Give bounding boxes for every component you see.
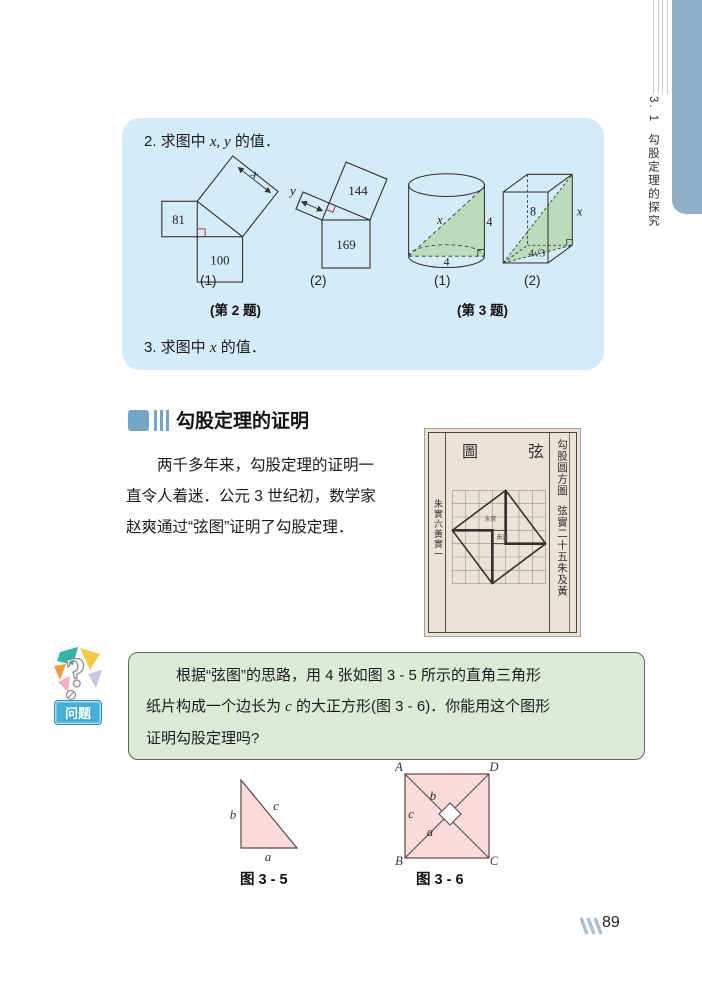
figure-3-6-caption: 图 3 - 6 xyxy=(416,868,464,889)
figure-3-5: b c a xyxy=(225,772,317,864)
problem-badge: 问题 xyxy=(54,700,102,725)
page-number-slashes-icon xyxy=(577,917,603,935)
caption-3-2: (2) xyxy=(524,273,541,288)
vertex-A-label: A xyxy=(394,760,403,774)
side-c-label: c xyxy=(408,807,414,821)
triangle-c-label: c xyxy=(273,798,279,813)
caption-2-2: (2) xyxy=(310,273,327,288)
side-a-label: a xyxy=(427,825,433,839)
exercise-box: 2. 求图中 x, y 的值． 81 100 x xyxy=(122,118,604,370)
hairline xyxy=(662,0,663,94)
cylinder-bottom-label: 4 xyxy=(444,255,450,269)
chapter-title: 勾股定理的探究 xyxy=(647,133,659,228)
intro-paragraph: 两千多年来，勾股定理的证明一 直令人着迷．公元 3 世纪初，数学家 赵爽通过“弦… xyxy=(126,450,422,543)
cuboid-bottom-label: 4√3 xyxy=(528,247,545,259)
title-char-tu: 圖 xyxy=(455,443,479,460)
scan-right-column: 勾股圆方圖 弦實二十五朱及黃 xyxy=(549,433,576,632)
question-line: 证明勾股定理吗? xyxy=(146,723,629,754)
square-144-label: 144 xyxy=(348,183,368,198)
vertex-D-label: D xyxy=(488,760,498,774)
figure-3-6: A D B C b c a xyxy=(392,760,504,872)
right-column-top-text: 勾股圆方圖 xyxy=(554,439,569,497)
question-line: 纸片构成一个边长为 c 的大正方形(图 3 - 6)．你能用这个图形 xyxy=(146,691,629,723)
chapter-tab xyxy=(672,0,702,214)
section-marker-icon xyxy=(128,410,149,431)
hairline xyxy=(653,0,654,94)
section-title: 勾股定理的证明 xyxy=(176,406,309,433)
section-bar-icon xyxy=(160,410,163,431)
caption-2-1: (1) xyxy=(200,273,217,288)
scan-left-column: 朱實六黃實一 xyxy=(429,433,446,632)
triangle-a-label: a xyxy=(265,849,272,864)
question2-figure-label: (第 2 题) xyxy=(210,299,261,319)
textbook-page: 3. 1勾股定理的探究 2. 求图中 x, y 的值． 81 100 x xyxy=(0,0,702,988)
xiantu-ancient-figure: 朱實六黃實一 勾股圆方圖 弦實二十五朱及黃 圖 弦 朱實 黃實 xyxy=(424,428,581,637)
square-169-label: 169 xyxy=(336,237,356,252)
scan-divider xyxy=(569,433,570,632)
caption-3-1: (1) xyxy=(434,273,451,288)
question-line: 根据“弦图”的思路，用 4 张如图 3 - 5 所示的直角三角形 xyxy=(146,660,629,691)
problem-3-text: 3. 求图中 x 的值． xyxy=(144,336,266,357)
question3-figure-label: (第 3 题) xyxy=(457,299,508,319)
hyp-x-label: x xyxy=(248,166,262,181)
vertex-C-label: C xyxy=(490,854,499,868)
triangle-b-label: b xyxy=(230,807,237,822)
inner-label-zhushi: 朱實 xyxy=(484,515,496,523)
side-b-label: b xyxy=(430,789,436,803)
problem-2-text: 2. 求图中 x, y 的值． xyxy=(144,130,280,151)
title-char-xian: 弦 xyxy=(521,443,545,460)
hairline xyxy=(658,0,659,94)
paragraph-line: 赵爽通过“弦图”证明了勾股定理． xyxy=(126,512,422,543)
chapter-number: 3. 1 xyxy=(647,96,659,123)
cuboid-x-label: x xyxy=(576,204,583,218)
cuboid-diag-label: 8 xyxy=(530,204,536,218)
section-bar-icon xyxy=(154,410,157,431)
square-81-label: 81 xyxy=(172,213,185,227)
y-dim-label: y xyxy=(288,183,296,198)
chapter-title-vertical: 3. 1勾股定理的探究 xyxy=(645,96,661,228)
right-column-bottom-text: 弦實二十五朱及黃 xyxy=(554,505,569,597)
question-box: 根据“弦图”的思路，用 4 张如图 3 - 5 所示的直角三角形 纸片构成一个边… xyxy=(128,652,645,760)
figure-problem2-2: y 144 169 xyxy=(282,158,390,272)
figure-problem3-2: 8 x 4√3 xyxy=(492,162,590,279)
question-mark-icon: ? xyxy=(50,644,108,704)
figure-3-5-caption: 图 3 - 5 xyxy=(240,868,288,889)
square-100-label: 100 xyxy=(210,253,229,267)
hairline xyxy=(667,0,668,94)
figure-problem2-1: 81 100 x xyxy=(146,154,284,284)
question-text: 根据“弦图”的思路，用 4 张如图 3 - 5 所示的直角三角形 纸片构成一个边… xyxy=(146,660,629,754)
xiantu-grid-diagram: 朱實 黃實 xyxy=(451,489,547,585)
section-bar-icon xyxy=(166,410,169,431)
vertex-B-label: B xyxy=(395,854,403,868)
cylinder-x-label: x xyxy=(436,213,443,227)
paragraph-line: 两千多年来，勾股定理的证明一 xyxy=(126,450,422,481)
paragraph-line: 直令人着迷．公元 3 世纪初，数学家 xyxy=(126,481,422,512)
left-column-text: 朱實六黃實一 xyxy=(432,499,445,559)
figure-problem3-1: x 4 4 xyxy=(402,166,492,280)
inner-label-huangshi: 黃實 xyxy=(496,534,508,542)
page-number: 89 xyxy=(602,914,620,932)
